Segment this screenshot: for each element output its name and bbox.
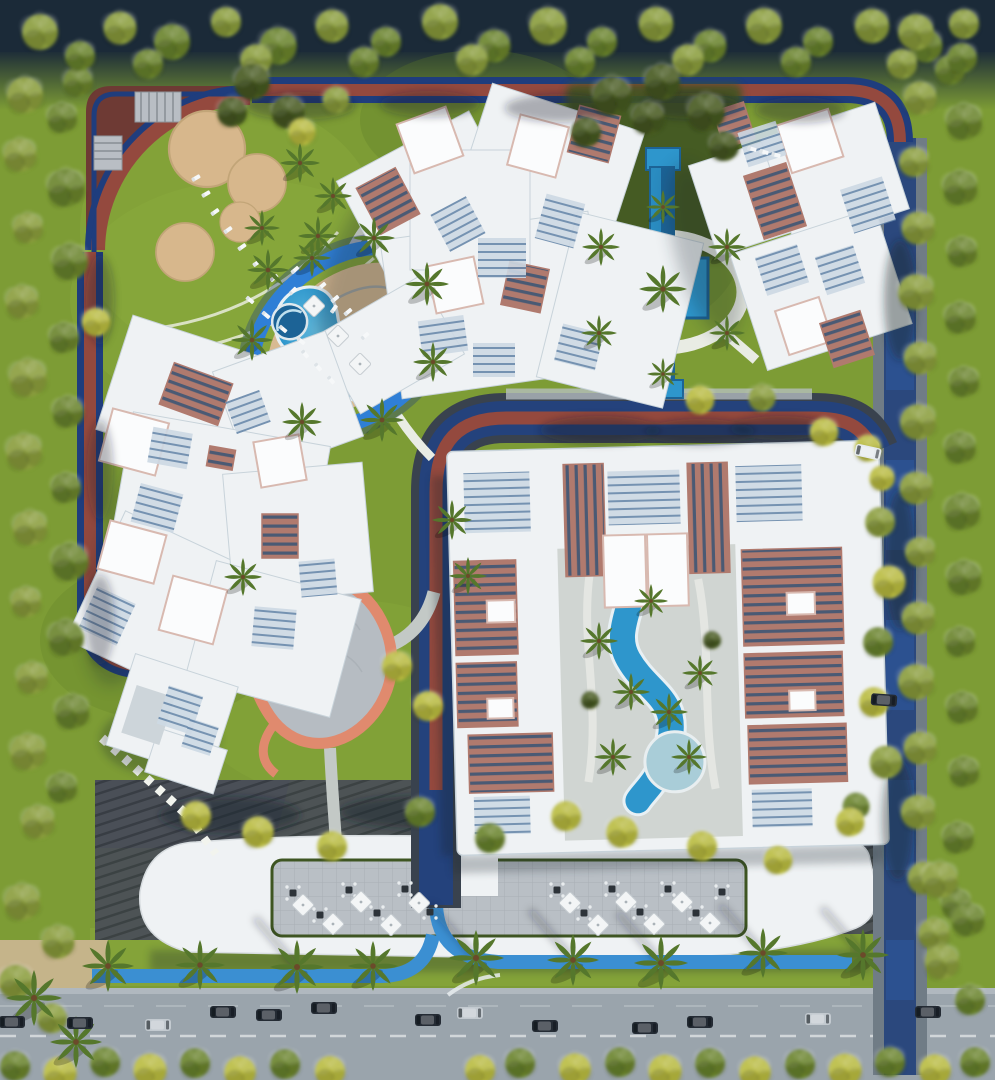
- tree: [873, 1044, 906, 1078]
- tree: [603, 1044, 636, 1078]
- parked-car: [532, 1020, 558, 1032]
- tree: [63, 38, 96, 72]
- tree: [953, 982, 986, 1016]
- tree: [693, 1045, 726, 1079]
- tree: [563, 44, 596, 78]
- tree: [947, 6, 980, 40]
- tree: [942, 299, 977, 335]
- tree: [313, 6, 349, 43]
- tree: [899, 598, 935, 635]
- tree: [11, 210, 44, 244]
- tree: [685, 828, 718, 862]
- tree: [3, 282, 39, 319]
- parked-car: [457, 1007, 483, 1019]
- tree: [903, 534, 936, 568]
- main-residential-complex: [431, 440, 890, 874]
- tree: [232, 60, 272, 101]
- tree: [14, 659, 49, 695]
- tree: [590, 73, 633, 117]
- parked-car: [805, 1013, 831, 1025]
- tree: [131, 46, 164, 80]
- tree: [885, 46, 918, 80]
- tree: [268, 1046, 301, 1080]
- tree: [897, 144, 930, 178]
- tree: [940, 167, 978, 206]
- tree: [101, 8, 137, 45]
- tree: [315, 828, 348, 862]
- parked-car: [871, 693, 898, 707]
- tree: [39, 922, 75, 959]
- tree: [958, 1044, 991, 1078]
- tree: [779, 44, 812, 78]
- tree: [942, 490, 982, 531]
- tree: [947, 364, 980, 398]
- tree: [1, 135, 37, 172]
- tree: [46, 616, 86, 657]
- tree: [808, 415, 839, 447]
- tree: [702, 629, 722, 649]
- tree: [896, 660, 936, 701]
- tree: [380, 648, 413, 682]
- tree: [321, 84, 351, 115]
- tree: [685, 90, 726, 133]
- tree: [19, 802, 55, 839]
- tree: [636, 3, 674, 42]
- tree: [629, 98, 665, 135]
- tree: [4, 430, 44, 471]
- tree: [863, 504, 896, 538]
- tree: [49, 470, 82, 504]
- tree: [642, 60, 682, 101]
- tree: [901, 78, 937, 115]
- tree: [898, 791, 936, 830]
- tree: [20, 10, 60, 51]
- tree: [49, 540, 90, 583]
- masterplan-canvas: [0, 0, 995, 1080]
- tree: [896, 270, 936, 311]
- tree: [747, 382, 777, 413]
- tree: [783, 1046, 816, 1080]
- tree: [897, 468, 933, 505]
- tree: [852, 5, 890, 44]
- tree: [9, 584, 42, 618]
- tree: [7, 356, 48, 399]
- tree: [920, 858, 960, 899]
- parked-car: [915, 1006, 941, 1018]
- parked-car: [210, 1006, 236, 1018]
- parked-car: [256, 1009, 282, 1021]
- tree: [901, 338, 937, 375]
- tree: [834, 805, 865, 837]
- parked-car: [311, 1002, 337, 1014]
- sand-play-circle: [156, 223, 214, 281]
- tree: [684, 383, 715, 415]
- tree: [867, 742, 903, 779]
- tree: [945, 40, 978, 74]
- parked-car: [687, 1016, 713, 1028]
- parked-car: [67, 1017, 93, 1029]
- tree: [88, 1044, 121, 1078]
- parked-car: [632, 1022, 658, 1034]
- tree: [762, 843, 793, 875]
- tree: [707, 128, 740, 162]
- aerial-masterplan-render: [0, 0, 995, 1080]
- tree: [209, 4, 242, 38]
- tree: [898, 400, 938, 441]
- tree: [943, 624, 976, 658]
- tree: [947, 754, 980, 788]
- tree: [870, 562, 906, 599]
- tree: [527, 4, 568, 47]
- tree: [0, 1048, 31, 1080]
- road-curb: [0, 988, 995, 994]
- tree: [473, 820, 506, 854]
- tree: [901, 728, 937, 765]
- parked-car: [145, 1019, 171, 1031]
- tree: [45, 166, 86, 209]
- tree: [80, 305, 111, 337]
- tree: [868, 463, 896, 492]
- tree: [50, 240, 90, 281]
- tree: [744, 4, 784, 45]
- tree: [503, 1045, 536, 1079]
- tree: [580, 689, 600, 709]
- round-pool: [644, 731, 706, 793]
- tree: [5, 73, 45, 114]
- tree: [215, 94, 248, 128]
- tree: [47, 320, 80, 354]
- tree: [240, 813, 275, 849]
- tree: [8, 730, 48, 771]
- tree: [940, 819, 975, 855]
- tree: [922, 941, 960, 980]
- tree: [861, 624, 894, 658]
- parked-car: [415, 1014, 441, 1026]
- tree: [178, 1045, 211, 1079]
- tree: [420, 0, 460, 41]
- tree: [944, 100, 984, 141]
- tree: [949, 900, 985, 937]
- tree: [944, 557, 982, 596]
- tree: [896, 10, 936, 51]
- tree: [403, 794, 436, 828]
- tree: [411, 688, 444, 722]
- tree: [942, 429, 977, 465]
- tree: [454, 41, 489, 77]
- tree: [287, 116, 317, 147]
- tree: [944, 689, 979, 725]
- tree: [604, 813, 639, 849]
- tree: [945, 234, 978, 268]
- tree: [52, 691, 90, 730]
- tree: [45, 100, 78, 134]
- parked-car: [0, 1016, 25, 1028]
- tree: [10, 507, 48, 546]
- tree: [549, 798, 582, 832]
- tree: [899, 208, 935, 245]
- tree: [179, 798, 212, 832]
- tree: [2, 880, 42, 921]
- tree: [45, 770, 78, 804]
- tree: [569, 114, 602, 148]
- tree: [347, 44, 380, 78]
- tree: [50, 393, 85, 429]
